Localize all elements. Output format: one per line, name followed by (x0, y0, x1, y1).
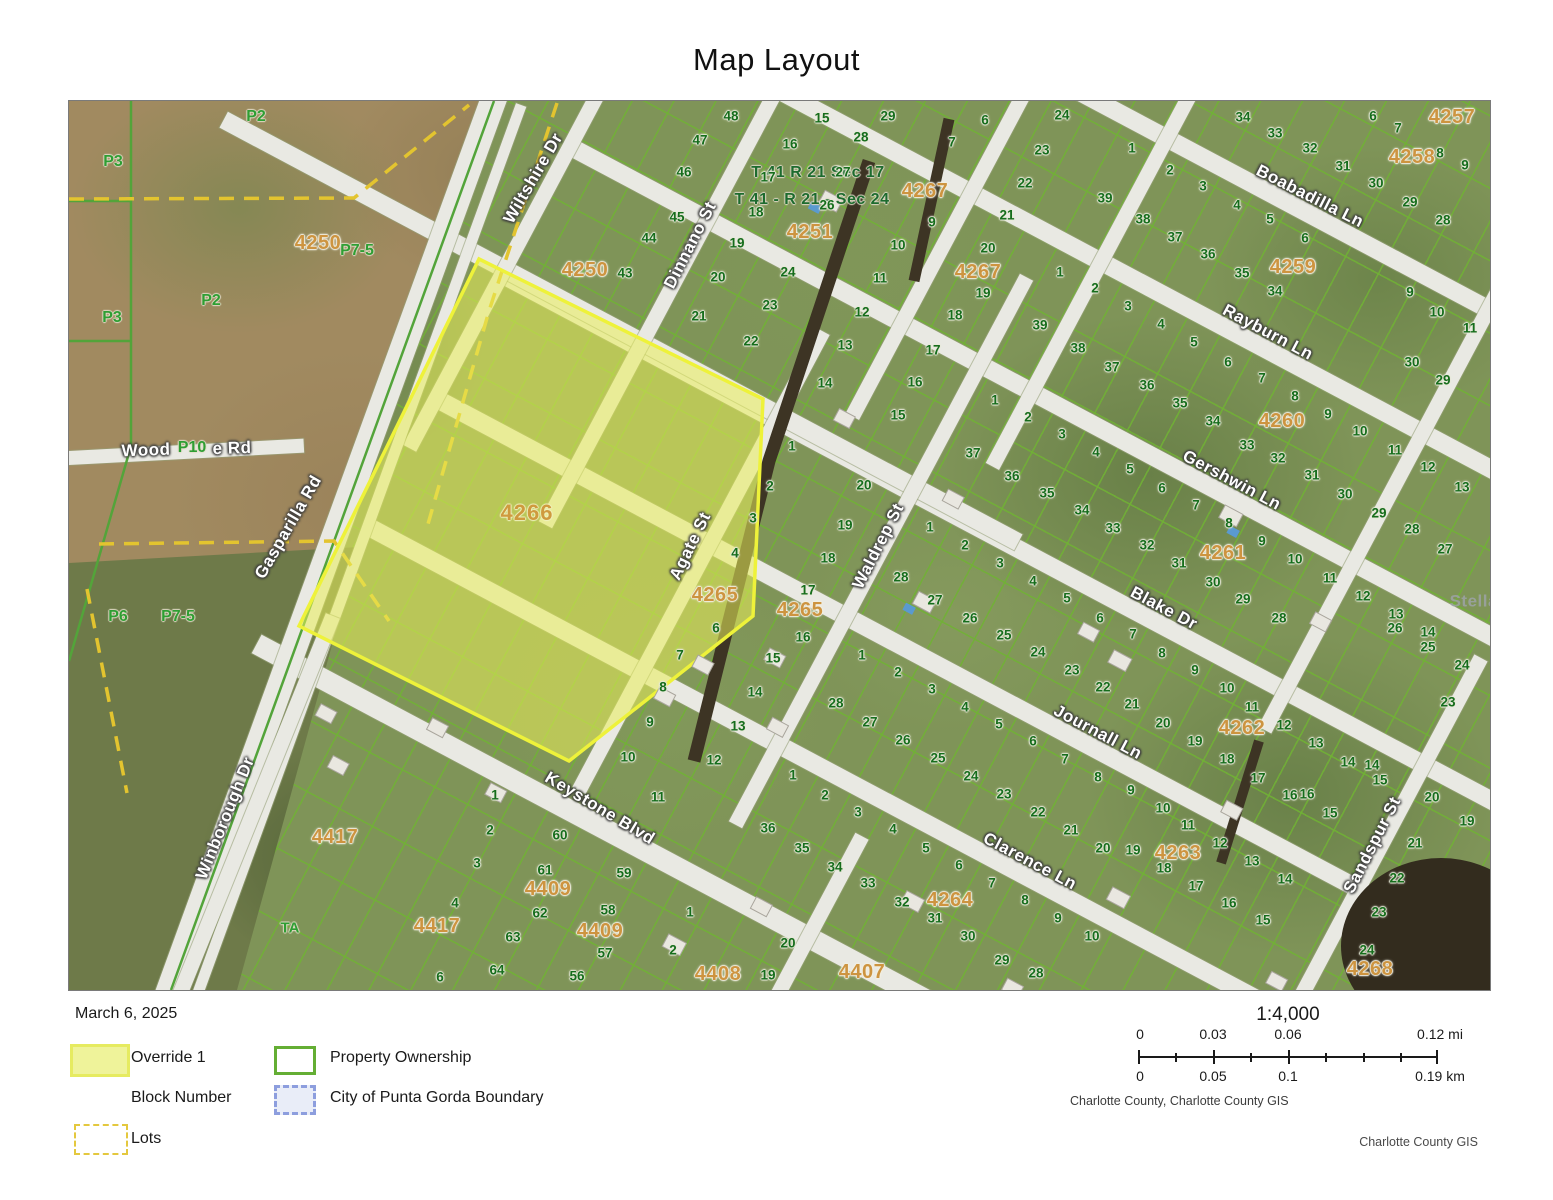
block-number: 4257 (1429, 107, 1476, 127)
block-number: 4408 (695, 964, 742, 984)
lot-number: 62 (532, 906, 547, 920)
lot-number: 7 (676, 648, 684, 662)
lot-number: 27 (927, 593, 942, 607)
lot-number: 35 (1039, 486, 1054, 500)
lot-number: 3 (854, 805, 862, 819)
legend-swatch-city-boundary (274, 1085, 316, 1115)
lot-number: 26 (1387, 621, 1402, 635)
lot-number: 12 (854, 305, 869, 319)
lot-number: 7 (1394, 121, 1402, 135)
lot-number: 15 (1322, 806, 1337, 820)
lot-number: 31 (1171, 556, 1186, 570)
lot-number: 17 (925, 343, 940, 357)
block-number: 4268 (1347, 959, 1394, 979)
lot-number: 3 (1124, 299, 1132, 313)
lot-number: 21 (999, 208, 1014, 222)
lot-number: 24 (963, 769, 978, 783)
lot-number: 4 (1029, 574, 1037, 588)
lot-number: 36 (1139, 378, 1154, 392)
lot-number: 8 (1225, 516, 1233, 530)
lot-number: 18 (947, 308, 962, 322)
lot-number: 20 (780, 936, 795, 950)
lot-number: 16 (782, 137, 797, 151)
lot-number: 29 (1235, 592, 1250, 606)
block-number: 4250 (562, 260, 609, 280)
lot-number: 39 (1032, 318, 1047, 332)
lot-number: 1 (926, 520, 934, 534)
lot-number: 29 (1435, 373, 1450, 387)
lot-number: 6 (1301, 231, 1309, 245)
lot-number: 57 (597, 946, 612, 960)
p-parcel-label: P7-5 (340, 243, 374, 259)
lot-number: 5 (995, 717, 1003, 731)
lot-number: 28 (828, 696, 843, 710)
lot-number: 30 (1404, 355, 1419, 369)
lot-number: 61 (537, 863, 552, 877)
street-label: Agate St (666, 509, 713, 582)
lot-number: 32 (1270, 451, 1285, 465)
lot-number: 24 (1054, 108, 1069, 122)
lot-number: 32 (894, 895, 909, 909)
lot-number: 12 (1276, 718, 1291, 732)
lot-number: 14 (1420, 625, 1435, 639)
lot-number: 16 (1221, 896, 1236, 910)
block-number: 4267 (955, 262, 1002, 282)
lot-number: 4 (889, 822, 897, 836)
lot-number: 17 (1188, 879, 1203, 893)
scale-km-019: 0.19 km (1405, 1068, 1475, 1084)
lot-number: 13 (730, 719, 745, 733)
p-parcel-label: P7-5 (161, 609, 195, 625)
lot-number: 63 (505, 930, 520, 944)
lot-number: 2 (1091, 281, 1099, 295)
lot-number: 2 (894, 665, 902, 679)
lot-number: 35 (794, 841, 809, 855)
map-attribution: Charlotte County, Charlotte County GIS (1070, 1094, 1289, 1108)
lot-number: 24 (1359, 943, 1374, 957)
lot-number: 15 (765, 651, 780, 665)
lot-number: 4 (451, 896, 459, 910)
legend-label-override: Override 1 (131, 1049, 206, 1067)
street-label: e Rd (212, 439, 251, 457)
scale-bar (1138, 1050, 1438, 1064)
lot-number: 9 (1054, 911, 1062, 925)
lot-number: 27 (835, 165, 850, 179)
lot-number: 33 (1105, 521, 1120, 535)
lot-number: 5 (1190, 335, 1198, 349)
lot-number: 59 (616, 866, 631, 880)
lot-number: 23 (1440, 695, 1455, 709)
lot-number: 11 (1323, 571, 1337, 585)
lot-number: 29 (994, 953, 1009, 967)
lot-number: 22 (1017, 176, 1032, 190)
lot-number: 5 (1266, 212, 1274, 226)
lot-number: 2 (1166, 163, 1174, 177)
lot-number: 29 (1402, 195, 1417, 209)
lot-number: 3 (749, 511, 757, 525)
legend-swatch-override (70, 1044, 130, 1077)
lot-number: 5 (1063, 591, 1071, 605)
map-date: March 6, 2025 (75, 1005, 177, 1023)
lot-number: 20 (710, 270, 725, 284)
lot-number: 10 (1429, 305, 1444, 319)
scale-mi-006: 0.06 (1263, 1026, 1313, 1042)
lot-number: 13 (1454, 480, 1469, 494)
lot-number: 25 (996, 628, 1011, 642)
street-label: Wiltshire Dr (500, 130, 565, 226)
lot-number: 3 (996, 556, 1004, 570)
scale-mi-0: 0 (1130, 1026, 1150, 1042)
lot-number: 18 (1219, 752, 1234, 766)
lot-number: 48 (723, 109, 738, 123)
lot-number: 6 (1029, 734, 1037, 748)
lot-number: 4 (1233, 198, 1241, 212)
lot-number: 16 (1282, 788, 1297, 802)
scale-km-0: 0 (1130, 1068, 1150, 1084)
street-label: Gasparilla Rd (252, 472, 325, 581)
map-viewport[interactable]: Wiltshire DrDinnano StAgate StWaldrep St… (68, 100, 1491, 991)
lot-number: 3 (1199, 179, 1207, 193)
lot-number: 23 (1371, 905, 1386, 919)
lot-number: 23 (1034, 143, 1049, 157)
lot-number: 36 (1200, 247, 1215, 261)
watermark: StellarMLS (1450, 593, 1491, 610)
lot-number: 35 (1234, 266, 1249, 280)
lot-number: 17 (760, 170, 775, 184)
lot-number: 16 (1299, 787, 1314, 801)
lot-number: 34 (1267, 284, 1282, 298)
block-number: 4262 (1219, 718, 1266, 738)
scale-mi-003: 0.03 (1188, 1026, 1238, 1042)
lot-number: 32 (1139, 538, 1154, 552)
lot-number: 24 (1454, 658, 1469, 672)
lot-number: 28 (853, 130, 868, 144)
block-number: 4417 (414, 916, 461, 936)
lot-number: 6 (981, 113, 989, 127)
lot-number: 3 (928, 682, 936, 696)
lot-number: 30 (1368, 176, 1383, 190)
lot-number: 14 (1277, 872, 1292, 886)
lot-number: 45 (669, 210, 684, 224)
scale-mi-012: 0.12 mi (1405, 1026, 1475, 1042)
page-title: Map Layout (0, 42, 1553, 78)
lot-number: 37 (965, 446, 980, 460)
lot-number: 2 (1024, 410, 1032, 424)
scale-km-005: 0.05 (1188, 1068, 1238, 1084)
lot-number: 23 (996, 787, 1011, 801)
lot-number: 11 (1245, 700, 1259, 714)
lot-number: 12 (706, 753, 721, 767)
lot-number: 4 (731, 546, 739, 560)
lot-number: 6 (436, 970, 444, 984)
lot-number: 27 (862, 715, 877, 729)
lot-number: 35 (1172, 396, 1187, 410)
lot-number: 28 (893, 570, 908, 584)
legend-swatch-lots (74, 1124, 128, 1155)
block-number: 4265 (777, 600, 824, 620)
lot-number: 9 (1461, 158, 1469, 172)
lot-number: 37 (1167, 230, 1182, 244)
lot-number: 2 (669, 943, 677, 957)
lot-number: 1 (858, 648, 866, 662)
lot-number: 25 (930, 751, 945, 765)
p-parcel-label: P3 (103, 154, 123, 170)
lot-number: 43 (617, 266, 632, 280)
block-number: 4259 (1270, 257, 1317, 277)
lot-number: 8 (1436, 146, 1444, 160)
lot-number: 19 (837, 518, 852, 532)
lot-number: 1 (1128, 141, 1136, 155)
lot-number: 32 (1302, 141, 1317, 155)
lot-number: 28 (1404, 522, 1419, 536)
lot-number: 29 (1371, 506, 1386, 520)
lot-number: 1 (991, 393, 999, 407)
lot-number: 8 (1094, 770, 1102, 784)
p-parcel-label: P3 (102, 310, 122, 326)
lot-number: 23 (1064, 663, 1079, 677)
lot-number: 30 (1205, 575, 1220, 589)
lot-number: 14 (747, 685, 762, 699)
lot-number: 11 (651, 790, 665, 804)
lot-number: 8 (1021, 893, 1029, 907)
lot-number: 5 (922, 841, 930, 855)
map-labels-layer: Wiltshire DrDinnano StAgate StWaldrep St… (69, 101, 1490, 990)
legend-label-block-number: Block Number (131, 1089, 231, 1107)
lot-number: 9 (928, 215, 936, 229)
lot-number: 3 (1058, 427, 1066, 441)
lot-number: 28 (1028, 966, 1043, 980)
lot-number: 33 (860, 876, 875, 890)
lot-number: 14 (1340, 755, 1355, 769)
lot-number: 19 (1187, 734, 1202, 748)
lot-number: 17 (800, 583, 815, 597)
lot-number: 22 (1095, 680, 1110, 694)
lot-number: 11 (1463, 321, 1477, 335)
lot-number: 8 (659, 680, 667, 694)
lot-number: 31 (927, 911, 942, 925)
lot-number: 26 (895, 733, 910, 747)
lot-number: 13 (1244, 854, 1259, 868)
lot-number: 27 (1437, 542, 1452, 556)
lot-number: 22 (743, 334, 758, 348)
lot-number: 26 (819, 198, 834, 212)
lot-number: 1 (1056, 265, 1064, 279)
lot-number: 20 (1155, 716, 1170, 730)
lot-number: 6 (1096, 611, 1104, 625)
block-number-highlight: 4266 (501, 502, 554, 524)
lot-number: 47 (692, 133, 707, 147)
lot-number: 6 (955, 858, 963, 872)
lot-number: 7 (1129, 627, 1137, 641)
lot-number: 1 (686, 905, 694, 919)
lot-number: 38 (1135, 212, 1150, 226)
lot-number: 19 (975, 286, 990, 300)
p-parcel-label: P2 (201, 293, 221, 309)
lot-number: 20 (856, 478, 871, 492)
lot-number: 18 (820, 551, 835, 565)
scale-ratio: 1:4,000 (1138, 1004, 1438, 1026)
lot-number: 15 (1255, 913, 1270, 927)
lot-number: 5 (1126, 462, 1134, 476)
lot-number: 44 (641, 231, 656, 245)
lot-number: 8 (1158, 646, 1166, 660)
lot-number: 14 (817, 376, 832, 390)
legend-label-city-boundary: City of Punta Gorda Boundary (330, 1089, 543, 1107)
lot-number: 6 (1224, 355, 1232, 369)
lot-number: 21 (1124, 697, 1139, 711)
lot-number: 38 (1070, 341, 1085, 355)
lot-number: 6 (1158, 481, 1166, 495)
lot-number: 2 (766, 479, 774, 493)
p-parcel-label: P6 (108, 609, 128, 625)
lot-number: 9 (1406, 285, 1414, 299)
block-number: 4261 (1200, 543, 1247, 563)
lot-number: 9 (1127, 783, 1135, 797)
lot-number: 9 (1258, 534, 1266, 548)
street-label: Wood (121, 441, 170, 460)
lot-number: 22 (1030, 805, 1045, 819)
lot-number: 1 (788, 439, 796, 453)
lot-number: 6 (712, 621, 720, 635)
lot-number: 3 (473, 856, 481, 870)
street-label: Blake Dr (1128, 583, 1200, 632)
lot-number: 24 (1030, 645, 1045, 659)
block-number: 4258 (1389, 147, 1436, 167)
p-parcel-label: P2 (246, 109, 266, 125)
lot-number: 16 (907, 375, 922, 389)
lot-number: 10 (1352, 424, 1367, 438)
lot-number: 7 (1258, 371, 1266, 385)
lot-number: 14 (1364, 758, 1379, 772)
p-parcel-label: P10 (178, 440, 206, 456)
lot-number: 56 (569, 969, 584, 983)
lot-number: 46 (676, 165, 691, 179)
lot-number: 34 (1235, 110, 1250, 124)
lot-number: 7 (948, 135, 956, 149)
lot-number: 13 (1308, 736, 1323, 750)
lot-number: 60 (552, 828, 567, 842)
block-number: 4260 (1259, 411, 1306, 431)
lot-number: 15 (1372, 773, 1387, 787)
lot-number: 7 (988, 876, 996, 890)
lot-number: 30 (960, 929, 975, 943)
lot-number: 28 (1435, 213, 1450, 227)
lot-number: 33 (1239, 438, 1254, 452)
lot-number: 9 (1324, 407, 1332, 421)
lot-number: 11 (1388, 443, 1402, 457)
lot-number: 31 (1335, 159, 1350, 173)
block-number: 4417 (312, 827, 359, 847)
lot-number: 15 (890, 408, 905, 422)
lot-number: 34 (827, 860, 842, 874)
lot-number: 10 (890, 238, 905, 252)
lot-number: 21 (1063, 823, 1078, 837)
lot-number: 21 (691, 309, 706, 323)
lot-number: 18 (1156, 861, 1171, 875)
block-number: 4409 (577, 921, 624, 941)
lot-number: 26 (962, 611, 977, 625)
lot-number: 6 (1369, 109, 1377, 123)
lot-number: 31 (1304, 468, 1319, 482)
lot-number: 13 (837, 338, 852, 352)
block-number: 4251 (787, 222, 834, 242)
lot-number: 64 (489, 963, 504, 977)
lot-number: 7 (1192, 498, 1200, 512)
map-layout-page: { "title": "Map Layout", "footer": { "da… (0, 0, 1553, 1200)
lot-number: 20 (1095, 841, 1110, 855)
legend-swatch-property-ownership (274, 1046, 316, 1075)
lot-number: 24 (780, 265, 795, 279)
lot-number: 30 (1337, 487, 1352, 501)
lot-number: 10 (1155, 801, 1170, 815)
lot-number: 19 (760, 968, 775, 982)
ta-label: TA (281, 921, 300, 936)
lot-number: 34 (1074, 503, 1089, 517)
lot-number: 11 (873, 271, 887, 285)
lot-number: 7 (1061, 752, 1069, 766)
lot-number: 22 (1389, 871, 1404, 885)
lot-number: 16 (795, 630, 810, 644)
lot-number: 28 (1271, 611, 1286, 625)
block-number: 4265 (692, 585, 739, 605)
legend-label-lots: Lots (131, 1130, 161, 1148)
lot-number: 20 (1424, 790, 1439, 804)
lot-number: 11 (1181, 818, 1195, 832)
legend-label-property-ownership: Property Ownership (330, 1049, 471, 1067)
lot-number: 33 (1267, 126, 1282, 140)
lot-number: 21 (1407, 836, 1422, 850)
lot-number: 39 (1097, 191, 1112, 205)
lot-number: 36 (760, 821, 775, 835)
block-number: 4250 (295, 233, 342, 253)
block-number: 4267 (902, 181, 949, 201)
lot-number: 10 (1219, 681, 1234, 695)
lot-number: 10 (1084, 929, 1099, 943)
lot-number: 25 (1420, 640, 1435, 654)
lot-number: 34 (1205, 414, 1220, 428)
lot-number: 13 (1388, 607, 1403, 621)
lot-number: 18 (748, 205, 763, 219)
gis-credit: Charlotte County GIS (1268, 1135, 1478, 1149)
lot-number: 1 (789, 768, 797, 782)
lot-number: 20 (980, 241, 995, 255)
lot-number: 12 (1420, 460, 1435, 474)
block-number: 4409 (525, 879, 572, 899)
lot-number: 10 (1287, 552, 1302, 566)
lot-number: 12 (1212, 836, 1227, 850)
lot-number: 19 (1125, 843, 1140, 857)
lot-number: 9 (646, 715, 654, 729)
lot-number: 36 (1004, 469, 1019, 483)
lot-number: 10 (620, 750, 635, 764)
street-label: Winborough Dr (193, 755, 257, 882)
lot-number: 2 (821, 788, 829, 802)
lot-number: 12 (1355, 589, 1370, 603)
lot-number: 29 (880, 109, 895, 123)
lot-number: 4 (961, 700, 969, 714)
lot-number: 1 (491, 788, 499, 802)
block-number: 4407 (839, 962, 886, 982)
lot-number: 2 (961, 538, 969, 552)
lot-number: 9 (1191, 663, 1199, 677)
scale-km-01: 0.1 (1263, 1068, 1313, 1084)
lot-number: 23 (762, 298, 777, 312)
street-label: Rayburn Ln (1220, 301, 1316, 363)
block-number: 4264 (927, 890, 974, 910)
lot-number: 2 (486, 823, 494, 837)
lot-number: 19 (729, 236, 744, 250)
lot-number: 17 (1250, 771, 1265, 785)
